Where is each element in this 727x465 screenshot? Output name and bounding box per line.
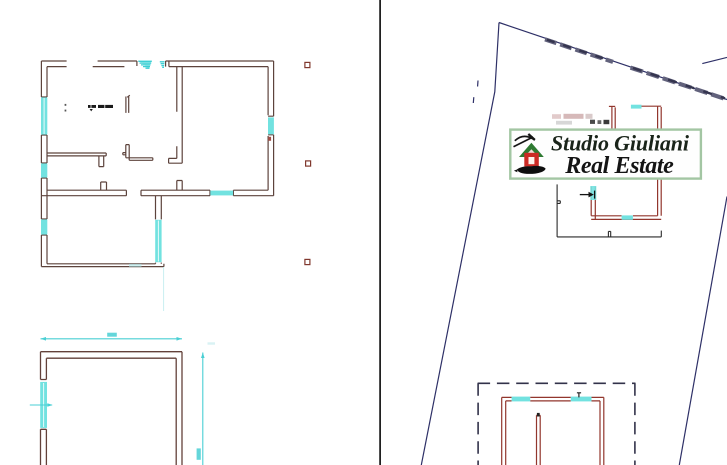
- svg-text:Real Estate: Real Estate: [564, 153, 674, 179]
- svg-text:Studio Giuliani: Studio Giuliani: [551, 131, 690, 156]
